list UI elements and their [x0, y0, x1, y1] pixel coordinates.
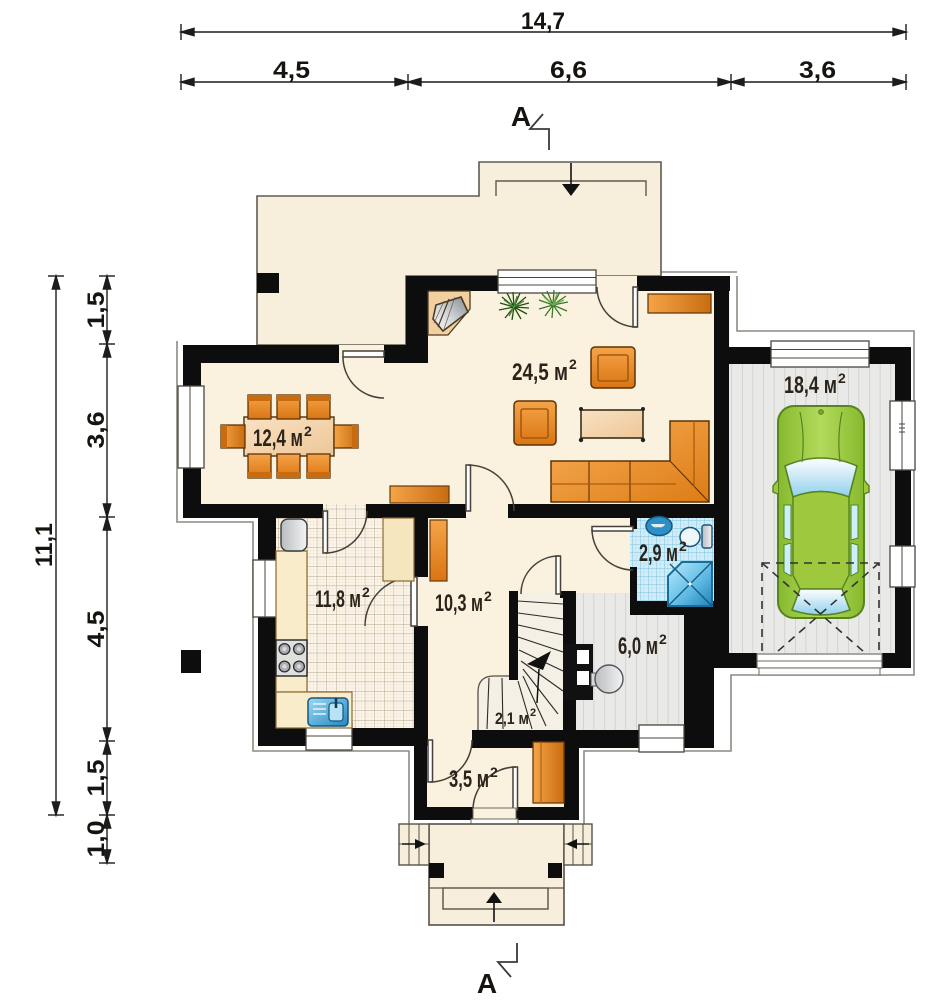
svg-text:18,4 м: 18,4 м — [784, 372, 837, 399]
svg-text:4,5: 4,5 — [83, 611, 110, 648]
svg-text:1,5: 1,5 — [83, 760, 110, 797]
svg-text:3,6: 3,6 — [83, 412, 110, 449]
svg-text:2,9 м: 2,9 м — [639, 540, 678, 567]
svg-text:12,4 м: 12,4 м — [253, 425, 303, 452]
svg-text:10,3 м: 10,3 м — [435, 590, 483, 617]
svg-text:1,0: 1,0 — [83, 821, 110, 858]
svg-text:2: 2 — [530, 707, 536, 719]
svg-text:2: 2 — [659, 631, 667, 647]
svg-text:2: 2 — [362, 584, 370, 600]
svg-text:3,6: 3,6 — [799, 57, 836, 84]
svg-text:2: 2 — [484, 588, 492, 604]
svg-text:4,5: 4,5 — [273, 57, 310, 84]
svg-text:2: 2 — [679, 538, 687, 554]
svg-text:1,5: 1,5 — [83, 292, 110, 329]
svg-text:11,1: 11,1 — [31, 523, 58, 567]
svg-text:6,0 м: 6,0 м — [618, 633, 658, 660]
svg-text:A: A — [511, 101, 531, 132]
svg-text:2: 2 — [569, 356, 577, 372]
svg-text:3,5 м: 3,5 м — [449, 766, 489, 793]
svg-text:2: 2 — [490, 764, 498, 780]
svg-text:24,5 м: 24,5 м — [512, 359, 568, 386]
svg-text:2,1 м: 2,1 м — [495, 709, 529, 728]
svg-text:2: 2 — [838, 370, 846, 386]
svg-text:11,8 м: 11,8 м — [315, 586, 361, 613]
svg-text:A: A — [477, 968, 497, 999]
svg-text:2: 2 — [304, 423, 312, 439]
svg-text:14,7: 14,7 — [521, 8, 565, 35]
svg-text:6,6: 6,6 — [550, 57, 587, 84]
